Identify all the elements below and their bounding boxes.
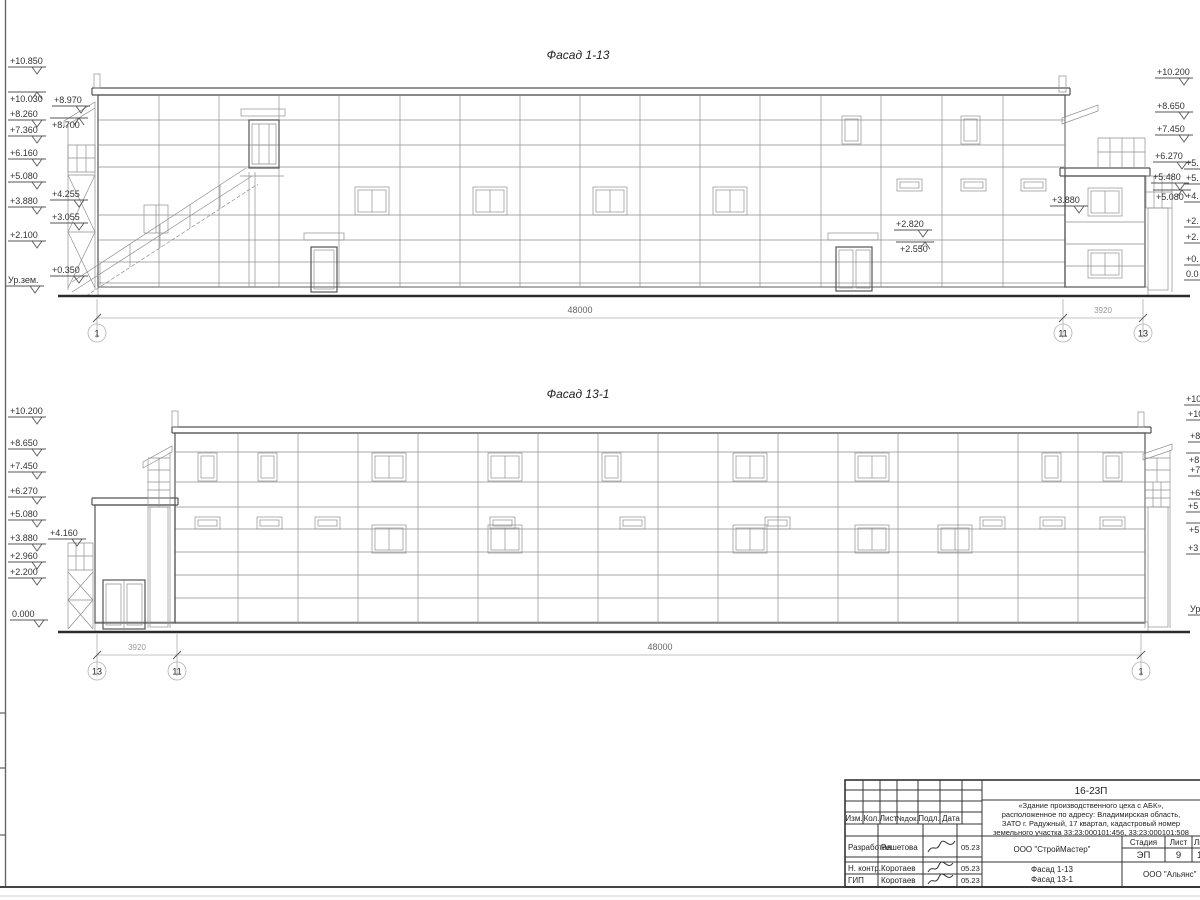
window xyxy=(258,453,277,481)
axis-label: 1 xyxy=(94,329,99,339)
facade1-marks-right: +10.200 +8.650 +7.450 +6.270 +5.480 +5.0… xyxy=(1151,67,1200,287)
level-mark: +7.450 xyxy=(1155,124,1193,142)
org-name: ООО "СтройМастер" xyxy=(1013,845,1090,854)
axis-label: 1 xyxy=(1138,667,1143,677)
level-mark: +10.200 xyxy=(8,406,46,424)
axis-label: 11 xyxy=(1058,329,1067,339)
vent-window xyxy=(980,517,1005,529)
date: 05.23 xyxy=(961,843,980,852)
svg-text:+7: +7 xyxy=(1190,465,1200,475)
level-mark: +6.270 xyxy=(8,486,46,504)
svg-text:+3.880: +3.880 xyxy=(1052,195,1080,205)
vent-window xyxy=(195,517,220,529)
signature xyxy=(928,862,953,872)
vent-window xyxy=(315,517,340,529)
project-code: 16-23П xyxy=(1075,786,1108,797)
svg-text:+2.: +2. xyxy=(1186,232,1199,242)
level-mark: +2.100 xyxy=(8,230,46,248)
svg-text:+6.270: +6.270 xyxy=(1155,151,1183,161)
svg-text:+3.880: +3.880 xyxy=(10,196,38,206)
level-mark: +5.480 xyxy=(1151,172,1189,190)
svg-text:+6.270: +6.270 xyxy=(10,486,38,496)
svg-text:+6.160: +6.160 xyxy=(10,148,38,158)
svg-text:+8.650: +8.650 xyxy=(10,438,38,448)
level-mark: +7.450 xyxy=(8,461,46,479)
role: ГИП xyxy=(848,876,864,885)
sheets-label: Листов xyxy=(1194,838,1200,847)
svg-text:+5: +5 xyxy=(1189,525,1199,535)
vent-window xyxy=(765,517,790,529)
svg-text:+10.200: +10.200 xyxy=(1157,67,1190,77)
level-mark: +8.650 xyxy=(8,438,46,456)
date: 05.23 xyxy=(961,864,980,873)
svg-text:+5.080: +5.080 xyxy=(10,171,38,181)
window xyxy=(713,187,747,215)
window xyxy=(488,453,522,481)
window xyxy=(855,453,889,481)
col-ndok: №док. xyxy=(897,814,919,823)
date: 05.23 xyxy=(961,876,980,885)
level-mark: Ур xyxy=(1188,604,1200,622)
level-mark: +4. xyxy=(1184,191,1200,209)
svg-text:+4.255: +4.255 xyxy=(52,189,80,199)
window xyxy=(355,187,389,215)
window xyxy=(733,453,767,481)
level-mark: +2.200 xyxy=(8,567,46,585)
svg-text:+2.100: +2.100 xyxy=(10,230,38,240)
drawing-name-2: Фасад 13-1 xyxy=(1031,875,1073,884)
level-mark: +2.550 xyxy=(896,242,934,254)
vent-window xyxy=(1040,517,1065,529)
level-mark: +2. xyxy=(1184,232,1200,250)
sheet-number: 9 xyxy=(1176,850,1181,861)
drawing-name-1: Фасад 1-13 xyxy=(1031,865,1073,874)
vent-window xyxy=(961,179,986,191)
facade2-marks-left: +10.200 +8.650 +7.450 +6.270 +5.080 +4.1… xyxy=(8,406,86,627)
sheet-label: Лист xyxy=(1170,838,1188,847)
facade1-dimensions: 48000 3920 1 11 13 xyxy=(88,299,1152,342)
stage-value: ЭП xyxy=(1137,850,1151,861)
facade1-marks-inner: +3.880 +2.820 +2.550 xyxy=(894,195,1088,254)
svg-text:+3: +3 xyxy=(1188,543,1198,553)
facade2-dimensions: 3920 48000 13 11 1 xyxy=(88,634,1150,680)
svg-text:+5.480: +5.480 xyxy=(1153,172,1181,182)
window xyxy=(1088,250,1122,278)
level-mark: +8.700 xyxy=(50,118,88,130)
level-mark: +5.080 xyxy=(8,171,46,189)
sheet-frame xyxy=(0,0,1200,896)
svg-text:+8.260: +8.260 xyxy=(10,109,38,119)
stage-label: Стадия xyxy=(1130,838,1157,847)
svg-text:+5.080: +5.080 xyxy=(1156,192,1184,202)
role: Н. контр. xyxy=(848,864,881,873)
level-mark: +5 xyxy=(1186,501,1200,519)
svg-text:+3.880: +3.880 xyxy=(10,533,38,543)
svg-text:+7.360: +7.360 xyxy=(10,125,38,135)
vent-window xyxy=(1021,179,1046,191)
svg-text:+7.450: +7.450 xyxy=(10,461,38,471)
level-mark: Ур.зем. xyxy=(6,275,44,293)
svg-text:+10: +10 xyxy=(1186,394,1200,404)
level-mark: +10.030 xyxy=(8,92,46,104)
level-mark: 0.0 xyxy=(1184,269,1200,287)
svg-text:+5.080: +5.080 xyxy=(10,509,38,519)
svg-text:+5.: +5. xyxy=(1186,173,1199,183)
level-mark: +2.820 xyxy=(894,219,932,237)
svg-text:+2.960: +2.960 xyxy=(10,551,38,561)
svg-text:+8: +8 xyxy=(1190,431,1200,441)
facade2-marks-right: +10 +10 +8 +8 +7 +6 +5 +5 +3 Ур xyxy=(1184,394,1200,622)
window xyxy=(198,453,217,481)
level-mark: +7 xyxy=(1188,465,1200,483)
project-line: ЗАТО г. Радужный, 17 квартал, кадастровы… xyxy=(1002,819,1180,828)
svg-text:+3.055: +3.055 xyxy=(52,212,80,222)
svg-text:+2.820: +2.820 xyxy=(896,219,924,229)
svg-text:+0.350: +0.350 xyxy=(52,265,80,275)
level-mark: +3.880 xyxy=(8,533,46,551)
project-line: «Здание производственного цеха с АБК», xyxy=(1018,801,1163,810)
dim-3920: 3920 xyxy=(1094,306,1112,315)
svg-text:+2.: +2. xyxy=(1186,216,1199,226)
facade-1-13-drawing xyxy=(58,74,1190,296)
name: Решетова xyxy=(881,843,918,852)
svg-text:+2.200: +2.200 xyxy=(10,567,38,577)
facade-13-1-drawing xyxy=(58,411,1190,632)
svg-text:+10.030: +10.030 xyxy=(10,94,43,104)
svg-text:+10: +10 xyxy=(1188,409,1200,419)
svg-text:+4.: +4. xyxy=(1186,191,1199,201)
level-mark: +8.650 xyxy=(1155,101,1193,119)
level-mark: 0.000 xyxy=(10,609,48,627)
facade1-marks-left: +10.850 +10.030 +8.970 +8.260 +8.700 +7.… xyxy=(6,56,90,293)
window xyxy=(1088,188,1122,216)
name: Коротаев xyxy=(881,864,916,873)
window xyxy=(1103,453,1122,481)
svg-text:0.000: 0.000 xyxy=(12,609,35,619)
vent-window xyxy=(490,517,515,529)
signature xyxy=(928,874,953,884)
level-mark: +10 xyxy=(1186,409,1200,427)
svg-text:+4.160: +4.160 xyxy=(50,528,78,538)
level-mark: +5.080 xyxy=(8,509,46,527)
project-line: расположенное по адресу: Владимирская об… xyxy=(1002,810,1180,819)
level-mark: +7.360 xyxy=(8,125,46,143)
svg-text:+5.: +5. xyxy=(1186,158,1199,168)
svg-text:+8.700: +8.700 xyxy=(52,120,80,130)
window xyxy=(473,187,507,215)
svg-text:+8.650: +8.650 xyxy=(1157,101,1185,111)
project-line: земельного участка 33:23:000101:456, 33:… xyxy=(993,828,1189,837)
level-mark: +5. xyxy=(1184,173,1200,191)
contractor-name: ООО "Альянс" xyxy=(1143,870,1197,879)
vent-window xyxy=(257,517,282,529)
svg-text:+2.550: +2.550 xyxy=(900,244,928,254)
svg-text:0.0: 0.0 xyxy=(1186,269,1199,279)
level-mark: +3.880 xyxy=(1050,195,1088,213)
svg-text:+0.: +0. xyxy=(1186,254,1199,264)
level-mark: +8 xyxy=(1188,431,1200,449)
level-mark: +3 xyxy=(1186,543,1200,561)
col-kol: Кол. xyxy=(864,814,880,823)
svg-text:+10.850: +10.850 xyxy=(10,56,43,66)
level-mark: +3.880 xyxy=(8,196,46,214)
name: Коротаев xyxy=(881,876,916,885)
axis-label: 13 xyxy=(1138,329,1148,339)
dim-48000: 48000 xyxy=(567,305,592,315)
vent-window xyxy=(620,517,645,529)
window xyxy=(1042,453,1061,481)
signature xyxy=(928,841,955,852)
level-mark: +0.350 xyxy=(50,265,88,283)
col-podp: Подл. xyxy=(918,814,940,823)
facade1-title: Фасад 1-13 xyxy=(547,48,610,62)
svg-text:+8: +8 xyxy=(1189,455,1199,465)
axis-label: 11 xyxy=(172,667,181,677)
vent-window xyxy=(897,179,922,191)
svg-text:Ур.зем.: Ур.зем. xyxy=(8,275,39,285)
col-data: Дата xyxy=(942,814,960,823)
col-izm: Изм. xyxy=(845,814,862,823)
svg-text:Ур: Ур xyxy=(1190,604,1200,614)
dim-48000: 48000 xyxy=(647,642,672,652)
svg-text:+8.970: +8.970 xyxy=(54,95,82,105)
title-block: 16-23П «Здание производственного цеха с … xyxy=(845,780,1200,887)
level-mark: +8 xyxy=(1186,453,1200,465)
level-mark: +10.850 xyxy=(8,56,46,74)
svg-text:+5: +5 xyxy=(1188,501,1198,511)
dim-3920: 3920 xyxy=(128,643,146,652)
svg-text:+6: +6 xyxy=(1190,488,1200,498)
svg-text:+10.200: +10.200 xyxy=(10,406,43,416)
level-mark: +10.200 xyxy=(1155,67,1193,85)
level-mark: +5 xyxy=(1186,523,1200,535)
window xyxy=(602,453,621,481)
window xyxy=(593,187,627,215)
axis-label: 13 xyxy=(92,667,102,677)
col-list: Лист xyxy=(880,814,898,823)
level-mark: +8.970 xyxy=(52,95,90,113)
drawing-sheet: Фасад 1-13 +10.850 +10.030 +8.97 xyxy=(0,0,1200,900)
vent-window xyxy=(1100,517,1125,529)
svg-text:+7.450: +7.450 xyxy=(1157,124,1185,134)
window xyxy=(372,453,406,481)
level-mark: +4.255 xyxy=(50,189,88,207)
facade2-title: Фасад 13-1 xyxy=(547,387,610,401)
level-mark: +6.160 xyxy=(8,148,46,166)
level-mark: +3.055 xyxy=(50,212,88,230)
